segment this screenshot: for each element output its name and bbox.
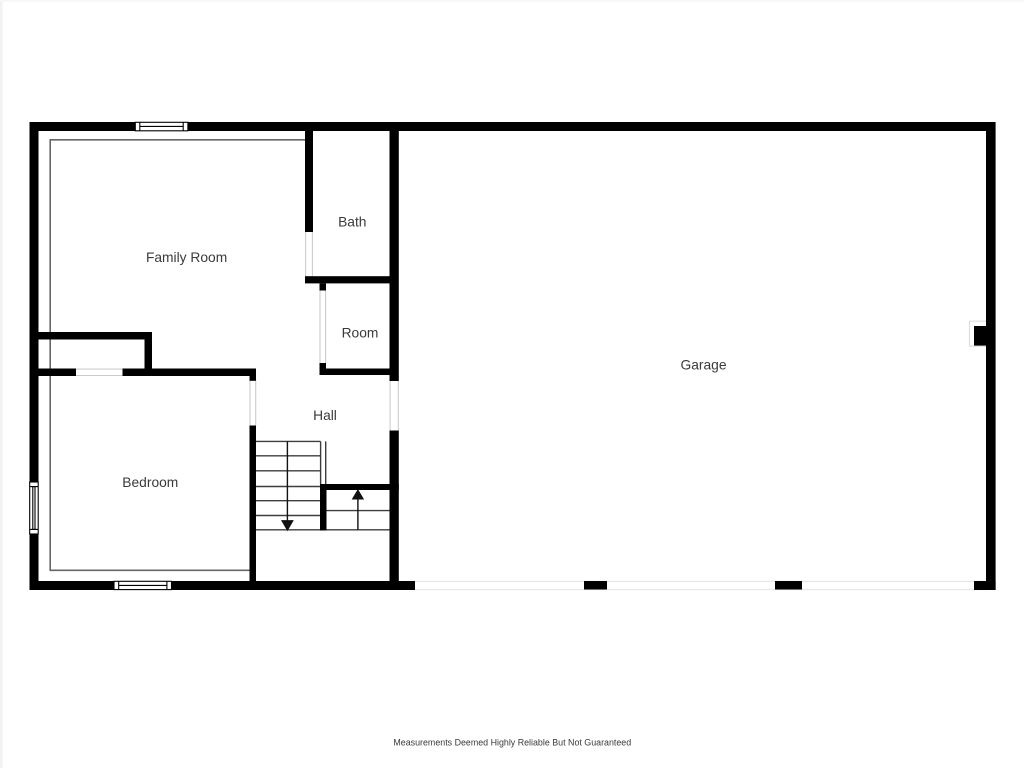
svg-text:Bedroom: Bedroom [122, 475, 178, 490]
svg-text:Room: Room [342, 326, 379, 341]
svg-text:Bath: Bath [338, 215, 366, 230]
svg-text:Measurements Deemed Highly Rel: Measurements Deemed Highly Reliable But … [393, 737, 631, 747]
svg-text:Family Room: Family Room [146, 250, 227, 265]
svg-text:Garage: Garage [680, 358, 726, 373]
svg-text:Hall: Hall [313, 408, 337, 423]
